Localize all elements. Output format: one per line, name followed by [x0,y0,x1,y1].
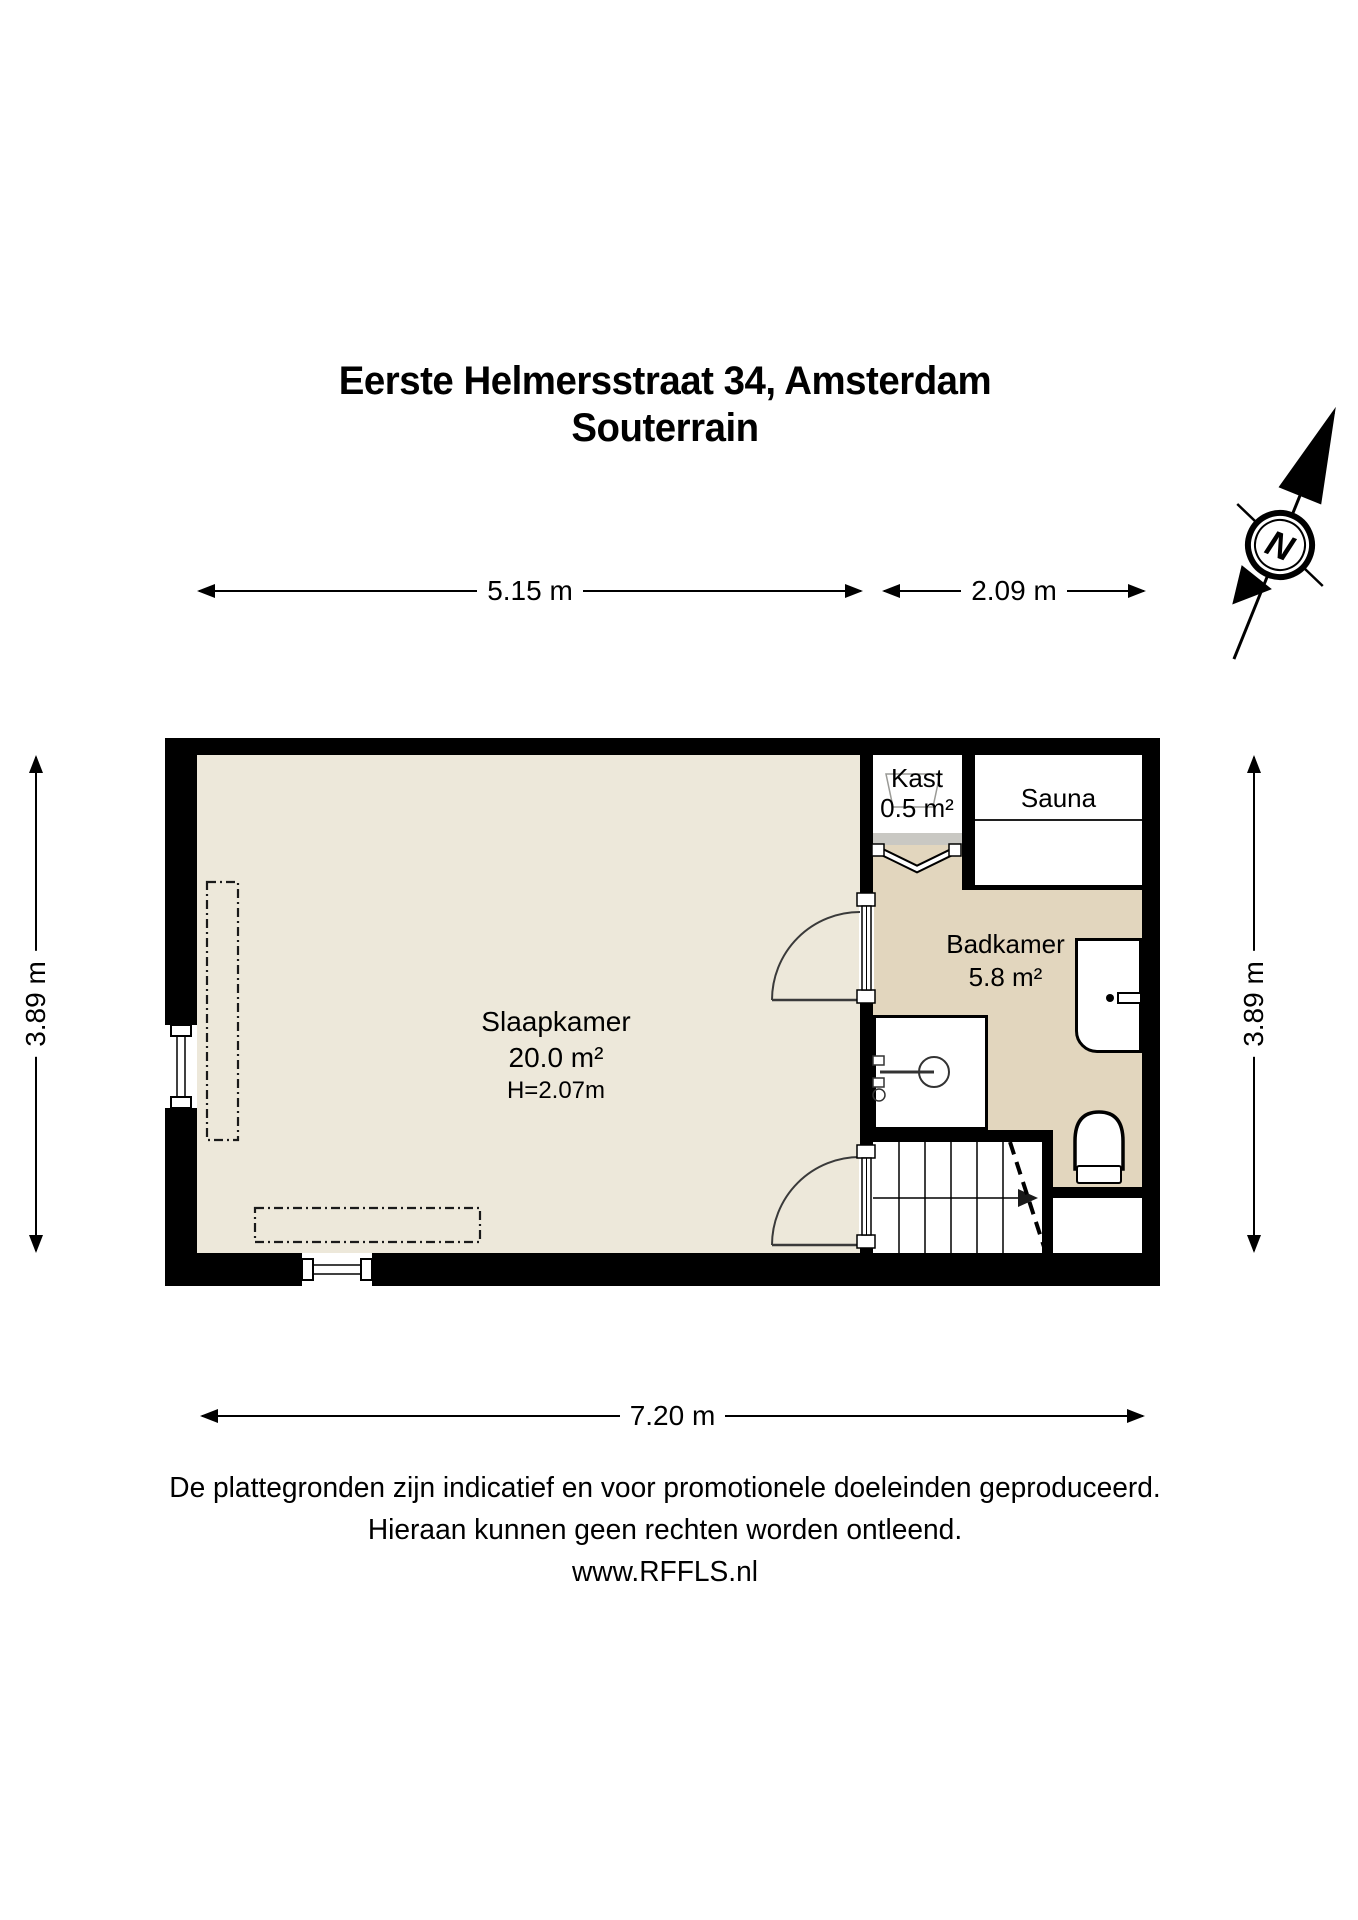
kast-label: Kast 0.5 m² [862,763,972,823]
room-name: Badkamer [873,928,1138,961]
dimension-top-left: 5.15 m [195,575,865,607]
badkamer-label: Badkamer 5.8 m² [873,928,1138,994]
stair-landing-floor [1053,1198,1142,1253]
room-area: 0.5 m² [862,793,972,823]
disclaimer: De plattegronden zijn indicatief en voor… [0,1467,1330,1593]
floor-subtitle: Souterrain [27,405,1304,452]
disclaimer-line: De plattegronden zijn indicatief en voor… [20,1467,1310,1509]
website-label: www.RFFLS.nl [20,1551,1310,1593]
room-area: 20.0 m² [406,1040,706,1076]
dimension-right: 3.89 m [1236,753,1272,1255]
dimension-bottom: 7.20 m [198,1400,1147,1432]
compass: N [1205,390,1355,680]
room-sauna-floor [975,755,1142,885]
dimension-label: 7.20 m [620,1400,726,1432]
slaapkamer-label: Slaapkamer 20.0 m² H=2.07m [406,1004,706,1106]
room-name: Slaapkamer [406,1004,706,1040]
page-title: Eerste Helmersstraat 34, Amsterdam Soute… [0,358,1330,452]
room-area: 5.8 m² [873,961,1138,994]
washbasin-cabinet [873,1015,988,1130]
dimension-label: 3.89 m [1238,951,1270,1057]
sauna-label: Sauna [975,782,1142,815]
room-badkamer-floor [1053,1130,1142,1187]
disclaimer-line: Hieraan kunnen geen rechten worden ontle… [20,1509,1310,1551]
room-name: Sauna [975,782,1142,815]
dimension-top-right: 2.09 m [880,575,1148,607]
north-arrow-icon: N [1205,390,1355,680]
dimension-label: 3.89 m [20,951,52,1057]
dimension-label: 2.09 m [961,575,1067,607]
room-name: Kast [862,763,972,793]
room-height: H=2.07m [406,1076,706,1106]
kast-threshold [873,833,962,845]
stairwell-floor [873,1142,1042,1253]
address-title: Eerste Helmersstraat 34, Amsterdam [27,358,1304,405]
floorplan-page: Eerste Helmersstraat 34, Amsterdam Soute… [0,0,1358,1920]
dimension-left: 3.89 m [18,753,54,1255]
dimension-label: 5.15 m [477,575,583,607]
